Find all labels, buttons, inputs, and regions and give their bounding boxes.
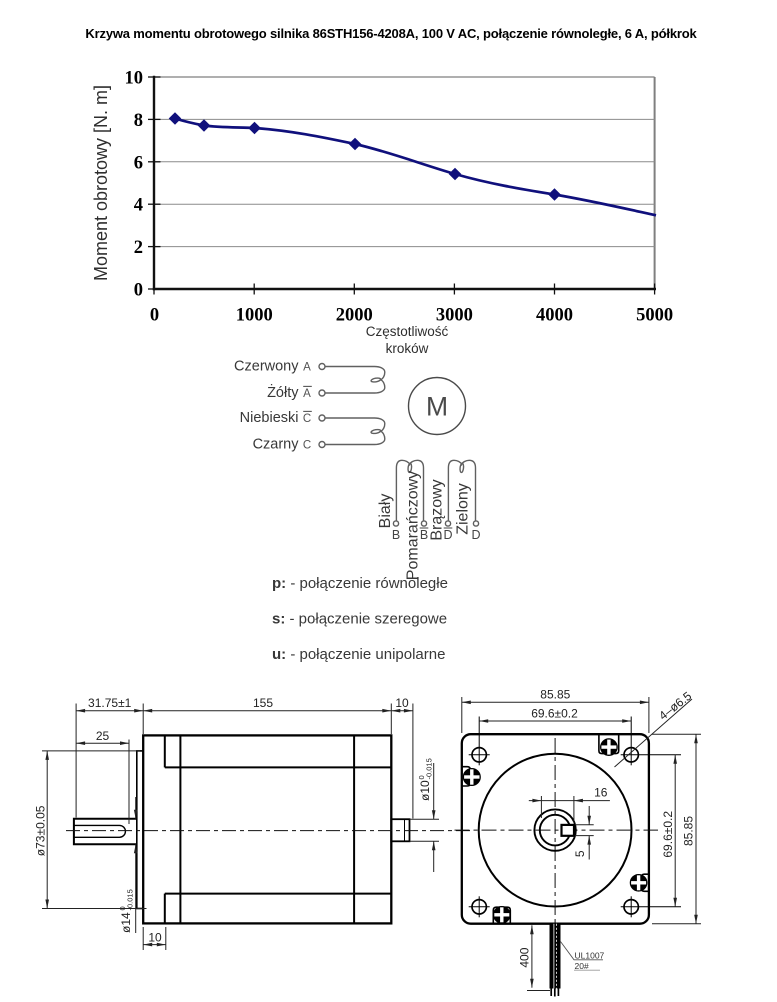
svg-text:ø73±0.05: ø73±0.05 — [34, 805, 48, 856]
svg-text:5000: 5000 — [636, 306, 673, 326]
svg-text:A: A — [303, 361, 311, 373]
svg-text:-0.015: -0.015 — [425, 758, 434, 779]
svg-text:10: 10 — [395, 696, 409, 710]
svg-text:6: 6 — [134, 153, 143, 173]
svg-text:10: 10 — [148, 931, 162, 945]
svg-text:C: C — [303, 413, 311, 425]
svg-text:B: B — [392, 528, 400, 542]
svg-text:Czarny: Czarny — [253, 437, 300, 453]
svg-text:Żółty: Żółty — [267, 383, 299, 401]
svg-text:4–ø6.5: 4–ø6.5 — [656, 689, 694, 723]
svg-text:D: D — [471, 528, 480, 542]
svg-text:3000: 3000 — [436, 306, 473, 326]
svg-text:Moment obrotowy [N. m]: Moment obrotowy [N. m] — [91, 85, 111, 281]
svg-text:25: 25 — [96, 729, 110, 743]
svg-text:69.6±0.2: 69.6±0.2 — [531, 706, 578, 720]
svg-text:85.85: 85.85 — [540, 688, 570, 702]
svg-text:400: 400 — [518, 947, 532, 967]
svg-text:1000: 1000 — [236, 306, 273, 326]
svg-text:kroków: kroków — [386, 341, 429, 356]
svg-text:s: - połączenie szeregowe: s: - połączenie szeregowe — [272, 611, 447, 628]
svg-text:C: C — [303, 439, 311, 451]
svg-text:69.6±0.2: 69.6±0.2 — [661, 811, 675, 858]
svg-text:Brązowy: Brązowy — [429, 479, 446, 540]
svg-text:31.75±1: 31.75±1 — [88, 696, 132, 710]
svg-text:0: 0 — [134, 281, 143, 301]
svg-text:ø14: ø14 — [119, 912, 133, 933]
svg-text:4000: 4000 — [536, 306, 573, 326]
svg-text:UL1007: UL1007 — [575, 950, 605, 960]
svg-text:A: A — [303, 388, 311, 400]
svg-text:Zielony: Zielony — [455, 483, 472, 535]
svg-text:10: 10 — [125, 69, 144, 89]
svg-text:85.85: 85.85 — [682, 816, 696, 846]
svg-text:5: 5 — [573, 850, 587, 857]
svg-text:Czerwony: Czerwony — [234, 359, 299, 375]
svg-text:8: 8 — [134, 111, 143, 131]
svg-text:-0.015: -0.015 — [126, 889, 135, 910]
svg-text:Krzywa momentu obrotowego siln: Krzywa momentu obrotowego silnika 86STH1… — [85, 26, 697, 41]
svg-text:ø10: ø10 — [418, 780, 432, 801]
svg-text:Biały: Biały — [377, 494, 394, 529]
svg-text:u: - połączenie unipolarne: u: - połączenie unipolarne — [272, 646, 445, 663]
svg-text:2: 2 — [134, 238, 143, 258]
svg-text:16: 16 — [594, 786, 608, 800]
svg-text:Niebieski: Niebieski — [240, 410, 299, 426]
svg-text:20#: 20# — [575, 961, 589, 971]
svg-text:p: - połączenie równoległe: p: - połączenie równoległe — [272, 575, 448, 592]
svg-text:2000: 2000 — [336, 306, 373, 326]
svg-text:0: 0 — [150, 306, 159, 326]
svg-text:Częstotliwość: Częstotliwość — [366, 324, 449, 339]
svg-text:155: 155 — [253, 696, 273, 710]
svg-text:M: M — [426, 392, 448, 422]
svg-text:Pomarańczowy: Pomarańczowy — [405, 471, 422, 580]
svg-text:4: 4 — [134, 196, 143, 216]
